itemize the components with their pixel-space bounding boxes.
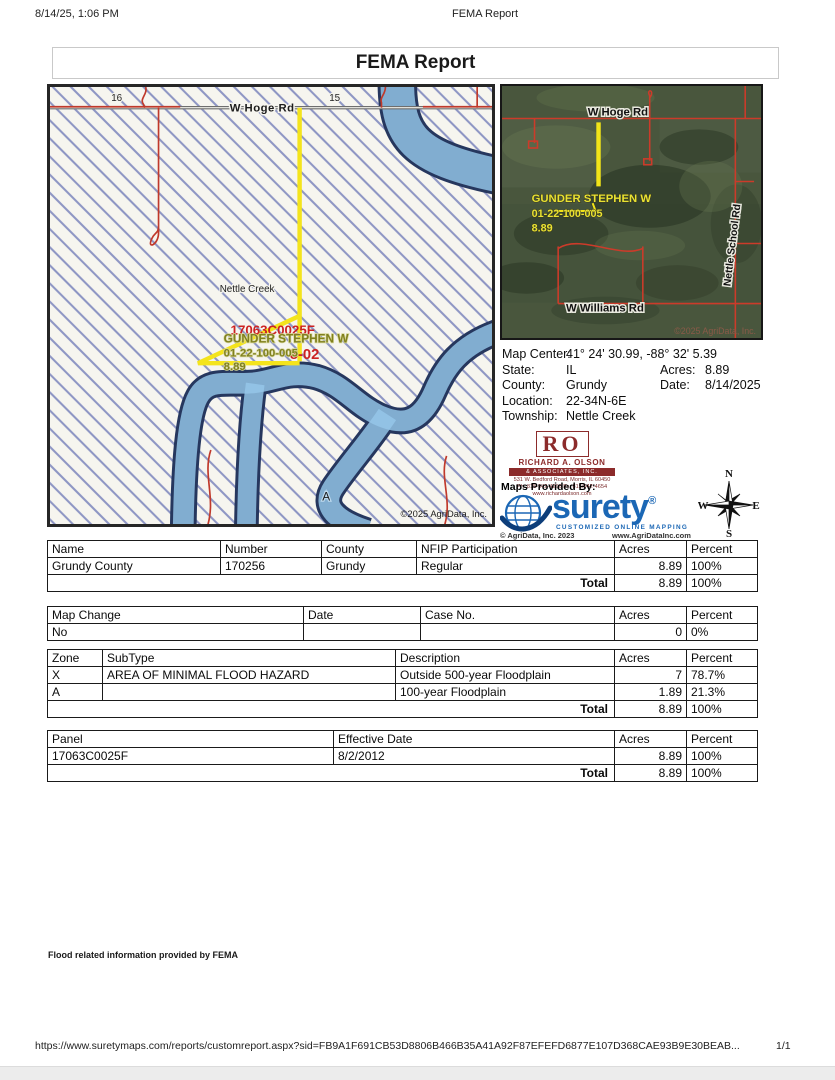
cell-subtype <box>103 684 396 701</box>
cell-zone: A <box>48 684 103 701</box>
table-row: Grundy County 170256 Grundy Regular 8.89… <box>48 558 758 575</box>
date-value: 8/14/2025 <box>705 378 761 392</box>
state-label: State: <box>502 363 535 377</box>
print-datetime: 8/14/25, 1:06 PM <box>35 8 119 20</box>
col-header: Case No. <box>421 607 615 624</box>
panel-table: Panel Effective Date Acres Percent 17063… <box>47 730 758 782</box>
parcel-number-label: 01-22-100-005 <box>224 347 298 359</box>
compass-rose-icon: N E S W <box>698 466 762 538</box>
total-label: Total <box>48 765 615 782</box>
aerial-w-hoge-rd-label: W Hoge Rd <box>588 107 648 119</box>
col-header: SubType <box>103 650 396 667</box>
col-header: NFIP Participation <box>417 541 615 558</box>
cell-acres: 0 <box>615 624 687 641</box>
flood-map-svg: 16 15 W Hoge Rd Nettle Creek 17063C0025F… <box>50 87 492 524</box>
county-label: County: <box>502 378 545 392</box>
table-header-row: Map Change Date Case No. Acres Percent <box>48 607 758 624</box>
aerial-copyright: ©2025 AgriData, Inc. <box>674 326 756 336</box>
state-row: State: IL Acres: 8.89 <box>502 363 782 379</box>
total-label: Total <box>48 575 615 592</box>
col-header: County <box>322 541 417 558</box>
registered-mark: ® <box>648 495 655 507</box>
table-row: X AREA OF MINIMAL FLOOD HAZARD Outside 5… <box>48 667 758 684</box>
cell-date <box>304 624 421 641</box>
cell-percent: 100% <box>687 748 758 765</box>
date-label: Date: <box>660 378 690 392</box>
col-header: Date <box>304 607 421 624</box>
aerial-acres-label: 8.89 <box>532 223 553 235</box>
cell-name: Grundy County <box>48 558 221 575</box>
section-16-label: 16 <box>111 93 122 104</box>
col-header: Percent <box>687 541 758 558</box>
cell-description: Outside 500-year Floodplain <box>396 667 615 684</box>
compass-n: N <box>725 468 733 480</box>
col-header: Percent <box>687 650 758 667</box>
compass-s: S <box>726 528 732 538</box>
cell-acres: 1.89 <box>615 684 687 701</box>
col-header: Acres <box>615 541 687 558</box>
acres-value: 8.89 <box>705 363 729 377</box>
compass-w: W <box>698 500 709 512</box>
township-label: Township: <box>502 409 558 423</box>
cell-effective-date: 8/2/2012 <box>334 748 615 765</box>
col-header: Percent <box>687 607 758 624</box>
print-footer-page-number: 1/1 <box>776 1040 791 1052</box>
aerial-w-williams-rd-label: W Williams Rd <box>566 302 644 314</box>
col-header: Percent <box>687 731 758 748</box>
map-center-label: Map Center: <box>502 347 571 361</box>
map-center-value: 41° 24' 30.99, -88° 32' 5.39 <box>566 347 717 361</box>
map-center-row: Map Center: 41° 24' 30.99, -88° 32' 5.39 <box>502 347 782 363</box>
state-value: IL <box>566 363 576 377</box>
agridata-copyright: © AgriData, Inc. 2023 <box>500 531 574 540</box>
total-percent: 100% <box>687 575 758 592</box>
cell-panel: 17063C0025F <box>48 748 334 765</box>
table-row: No 0 0% <box>48 624 758 641</box>
section-15-label: 15 <box>329 93 340 104</box>
cell-map-change: No <box>48 624 304 641</box>
report-title: FEMA Report <box>52 47 779 79</box>
col-header: Acres <box>615 731 687 748</box>
zone-table: Zone SubType Description Acres Percent X… <box>47 649 758 718</box>
cell-number: 170256 <box>221 558 322 575</box>
ro-monogram: RO <box>536 431 589 457</box>
owner-label: GUNDER STEPHEN W <box>224 331 350 345</box>
cell-percent: 78.7% <box>687 667 758 684</box>
cell-percent: 0% <box>687 624 758 641</box>
table-total-row: Total 8.89 100% <box>48 765 758 782</box>
compass-e: E <box>752 500 759 512</box>
cell-zone: X <box>48 667 103 684</box>
cell-case-no <box>421 624 615 641</box>
cell-subtype: AREA OF MINIMAL FLOOD HAZARD <box>103 667 396 684</box>
table-total-row: Total 8.89 100% <box>48 575 758 592</box>
col-header: Name <box>48 541 221 558</box>
col-header: Effective Date <box>334 731 615 748</box>
surety-globe-icon <box>500 492 552 536</box>
total-acres: 8.89 <box>615 575 687 592</box>
township-row: Township: Nettle Creek <box>502 409 782 425</box>
aerial-map-svg: W Hoge Rd W Williams Rd Nettle School Rd… <box>502 86 761 338</box>
nettle-creek-label: Nettle Creek <box>220 284 275 295</box>
township-value: Nettle Creek <box>566 409 635 423</box>
w-hoge-rd-label: W Hoge Rd <box>230 103 295 115</box>
total-acres: 8.89 <box>615 701 687 718</box>
cell-acres: 8.89 <box>615 748 687 765</box>
location-row: Location: 22-34N-6E <box>502 394 782 410</box>
surety-name: surety <box>552 488 648 526</box>
print-footer-url: https://www.suretymaps.com/reports/custo… <box>35 1040 740 1052</box>
surety-wordmark: surety® <box>552 488 655 527</box>
acres-label: Acres: <box>660 363 695 377</box>
ro-name: Richard A. Olson <box>503 458 621 467</box>
aerial-owner-label: GUNDER STEPHEN W <box>532 193 652 205</box>
print-header-title: FEMA Report <box>452 8 518 20</box>
col-header: Number <box>221 541 322 558</box>
total-label: Total <box>48 701 615 718</box>
table-header-row: Name Number County NFIP Participation Ac… <box>48 541 758 558</box>
col-header: Panel <box>48 731 334 748</box>
flood-map: 16 15 W Hoge Rd Nettle Creek 17063C0025F… <box>47 84 495 527</box>
total-percent: 100% <box>687 701 758 718</box>
cell-nfip: Regular <box>417 558 615 575</box>
flood-map-copyright: ©2025 AgriData, Inc. <box>401 509 488 519</box>
county-row: County: Grundy Date: 8/14/2025 <box>502 378 782 394</box>
nfip-table: Name Number County NFIP Participation Ac… <box>47 540 758 592</box>
parcel-acres-label: 8.89 <box>224 361 246 373</box>
aerial-map: W Hoge Rd W Williams Rd Nettle School Rd… <box>500 84 763 340</box>
cell-acres: 7 <box>615 667 687 684</box>
cell-percent: 100% <box>687 558 758 575</box>
table-row: 17063C0025F 8/2/2012 8.89 100% <box>48 748 758 765</box>
table-total-row: Total 8.89 100% <box>48 701 758 718</box>
cell-county: Grundy <box>322 558 417 575</box>
location-label: Location: <box>502 394 553 408</box>
county-value: Grundy <box>566 378 607 392</box>
total-acres: 8.89 <box>615 765 687 782</box>
location-value: 22-34N-6E <box>566 394 626 408</box>
scan-edge <box>0 1066 835 1080</box>
fema-report-page: 8/14/25, 1:06 PM FEMA Report FEMA Report <box>0 0 835 1080</box>
ro-associates-band: & Associates, Inc. <box>509 468 615 476</box>
cell-acres: 8.89 <box>615 558 687 575</box>
aerial-parcel-number-label: 01-22-100-005 <box>532 208 603 220</box>
map-info-block: Map Center: 41° 24' 30.99, -88° 32' 5.39… <box>502 347 782 425</box>
col-header: Map Change <box>48 607 304 624</box>
cell-percent: 21.3% <box>687 684 758 701</box>
map-change-table: Map Change Date Case No. Acres Percent N… <box>47 606 758 641</box>
agridata-website: www.AgriDataInc.com <box>612 531 691 540</box>
surety-tagline: CUSTOMIZED ONLINE MAPPING <box>556 524 688 531</box>
table-header-row: Zone SubType Description Acres Percent <box>48 650 758 667</box>
col-header: Zone <box>48 650 103 667</box>
table-header-row: Panel Effective Date Acres Percent <box>48 731 758 748</box>
col-header: Description <box>396 650 615 667</box>
table-row: A 100-year Floodplain 1.89 21.3% <box>48 684 758 701</box>
col-header: Acres <box>615 607 687 624</box>
col-header: Acres <box>615 650 687 667</box>
zone-a-label: A <box>322 489 330 503</box>
cell-description: 100-year Floodplain <box>396 684 615 701</box>
fema-footnote: Flood related information provided by FE… <box>48 950 238 960</box>
total-percent: 100% <box>687 765 758 782</box>
